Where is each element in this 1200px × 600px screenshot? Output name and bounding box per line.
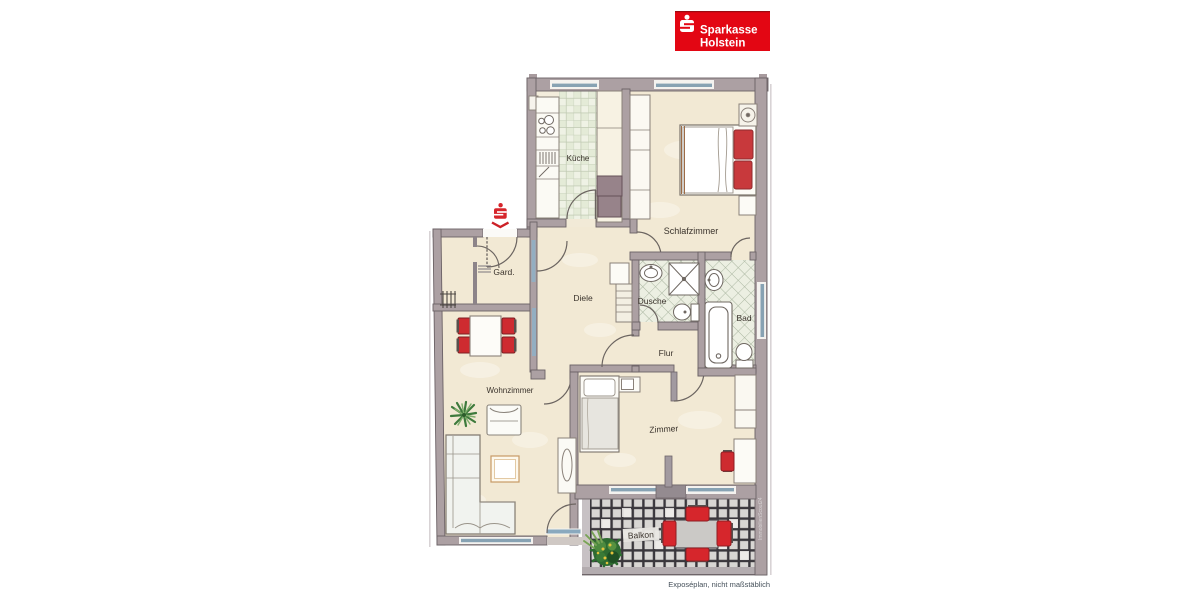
- svg-text:Schlafzimmer: Schlafzimmer: [664, 226, 719, 236]
- svg-text:Bad: Bad: [736, 313, 751, 323]
- svg-text:Diele: Diele: [573, 293, 593, 303]
- svg-text:ImmobilienScout24: ImmobilienScout24: [758, 497, 764, 540]
- svg-text:Wohnzimmer: Wohnzimmer: [487, 386, 534, 395]
- svg-text:Sparkasse: Sparkasse: [700, 25, 758, 37]
- svg-text:Exposéplan, nicht maßstäblich: Exposéplan, nicht maßstäblich: [668, 580, 770, 589]
- svg-text:Holstein: Holstein: [700, 38, 745, 50]
- svg-text:Gard.: Gard.: [493, 267, 514, 277]
- svg-text:Dusche: Dusche: [638, 296, 667, 306]
- svg-text:Flur: Flur: [659, 348, 674, 358]
- svg-text:Küche: Küche: [567, 154, 590, 163]
- svg-text:Balkon: Balkon: [628, 529, 655, 540]
- svg-text:Zimmer: Zimmer: [649, 423, 678, 435]
